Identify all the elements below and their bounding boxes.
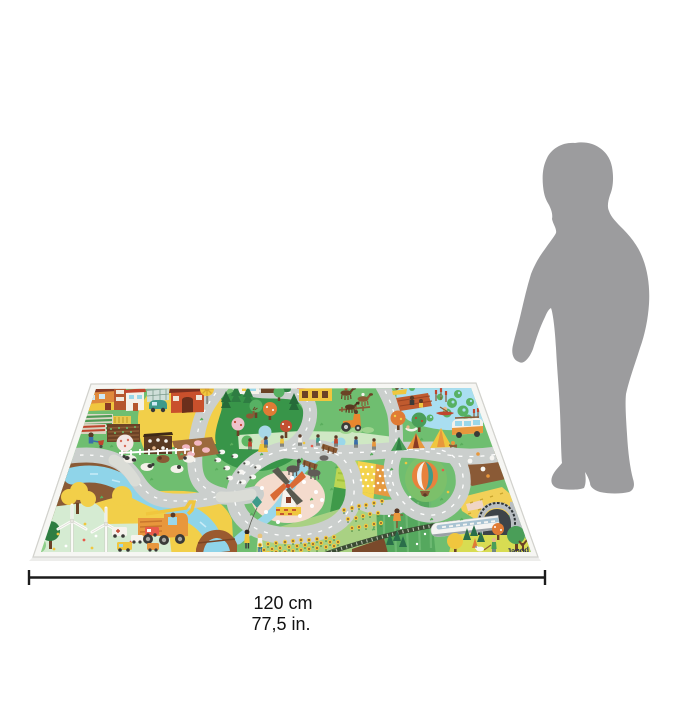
svg-text:120 cm: 120 cm bbox=[253, 593, 312, 613]
svg-text:77,5 in.: 77,5 in. bbox=[251, 614, 310, 634]
